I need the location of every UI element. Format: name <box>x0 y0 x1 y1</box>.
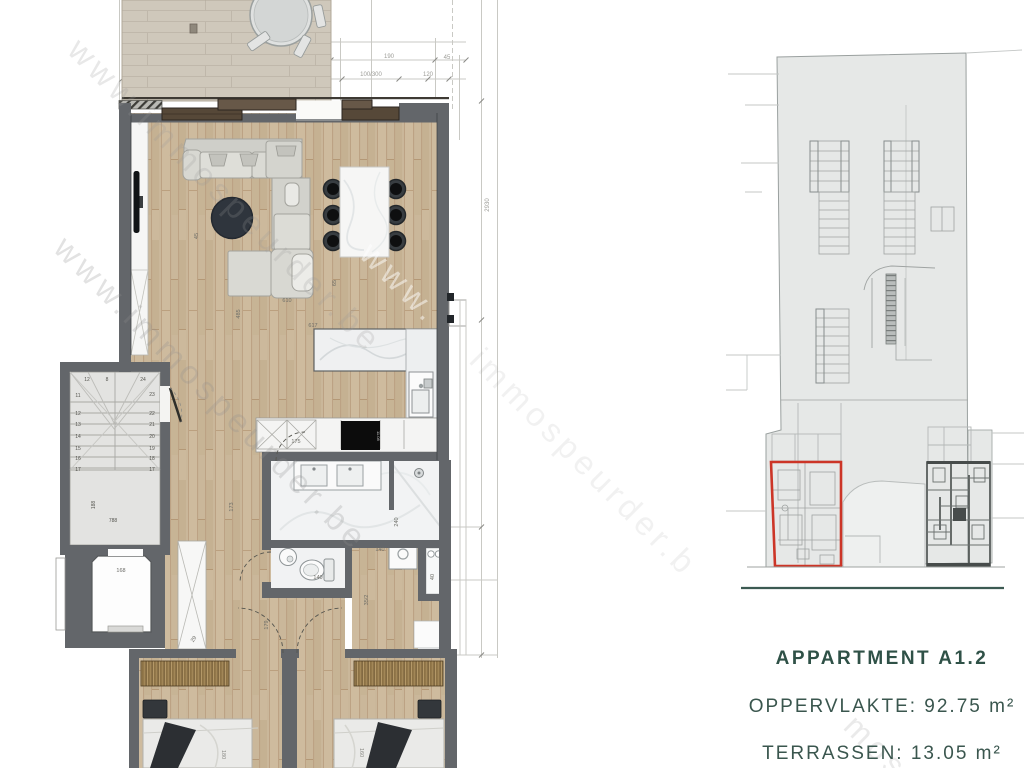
svg-text:610: 610 <box>282 298 291 304</box>
svg-text:485: 485 <box>236 309 242 318</box>
svg-text:24: 24 <box>140 377 146 383</box>
svg-text:21: 21 <box>149 422 155 428</box>
svg-text:140: 140 <box>313 575 322 581</box>
svg-text:40: 40 <box>430 574 436 580</box>
svg-text:19: 19 <box>149 446 155 452</box>
svg-text:788: 788 <box>109 518 118 524</box>
svg-text:immospeurder.b: immospeurder.b <box>463 341 706 584</box>
svg-text:12: 12 <box>84 377 90 383</box>
svg-text:180: 180 <box>220 750 226 759</box>
svg-text:190: 190 <box>384 54 395 60</box>
svg-text:100/300: 100/300 <box>360 72 382 78</box>
svg-text:23: 23 <box>149 392 155 398</box>
svg-text:173: 173 <box>229 502 235 511</box>
svg-text:11: 11 <box>75 393 80 399</box>
svg-text:13: 13 <box>75 422 81 428</box>
svg-text:240: 240 <box>394 517 400 526</box>
svg-text:140: 140 <box>375 547 384 553</box>
svg-text:17: 17 <box>149 467 155 473</box>
svg-text:TERRASSEN: 13.05 m²: TERRASSEN: 13.05 m² <box>762 743 1002 764</box>
svg-text:168: 168 <box>116 568 125 574</box>
svg-text:15: 15 <box>75 446 81 452</box>
svg-text:120: 120 <box>423 72 434 78</box>
svg-text:35/2: 35/2 <box>364 595 370 606</box>
svg-text:617: 617 <box>308 323 317 329</box>
svg-text:45: 45 <box>194 233 200 239</box>
svg-text:22: 22 <box>149 411 155 417</box>
svg-text:179: 179 <box>264 620 270 629</box>
svg-text:14: 14 <box>75 434 81 440</box>
svg-text:160: 160 <box>358 748 364 757</box>
svg-text:11.08: 11.08 <box>376 431 381 441</box>
svg-text:12: 12 <box>75 411 81 417</box>
svg-text:OPPERVLAKTE: 92.75 m²: OPPERVLAKTE: 92.75 m² <box>749 696 1016 717</box>
svg-text:175: 175 <box>291 439 300 445</box>
svg-text:8: 8 <box>106 377 109 383</box>
svg-text:20: 20 <box>149 434 155 440</box>
svg-text:17: 17 <box>75 467 81 473</box>
svg-text:2930: 2930 <box>485 198 491 212</box>
svg-text:188: 188 <box>91 501 97 510</box>
svg-text:45: 45 <box>444 55 451 61</box>
svg-text:APPARTMENT A1.2: APPARTMENT A1.2 <box>776 648 989 669</box>
svg-text:18: 18 <box>149 456 155 462</box>
svg-text:16: 16 <box>75 456 81 462</box>
